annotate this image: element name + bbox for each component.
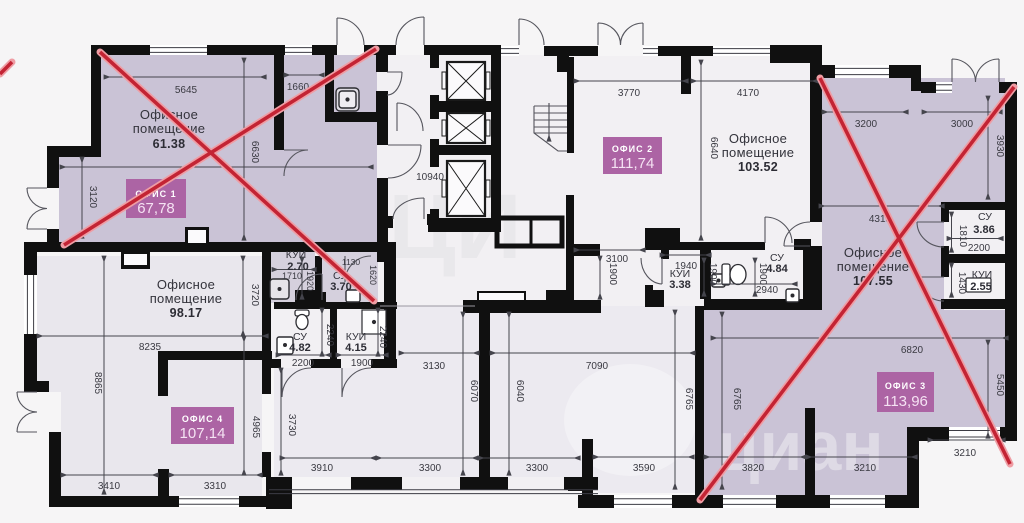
svg-text:2240: 2240: [377, 326, 388, 349]
svg-text:3910: 3910: [311, 463, 334, 474]
svg-text:2.70: 2.70: [287, 261, 308, 273]
svg-text:3720: 3720: [249, 284, 260, 307]
svg-text:5645: 5645: [175, 85, 198, 96]
svg-text:3410: 3410: [98, 481, 121, 492]
svg-text:8235: 8235: [139, 342, 162, 353]
svg-text:3210: 3210: [954, 448, 977, 459]
svg-text:3930: 3930: [994, 135, 1005, 158]
svg-text:6640: 6640: [708, 137, 719, 160]
svg-text:8865: 8865: [92, 372, 103, 395]
svg-text:2200: 2200: [292, 358, 315, 369]
svg-text:Офисное: Офисное: [729, 131, 787, 146]
svg-text:113,96: 113,96: [883, 393, 928, 410]
svg-text:6820: 6820: [901, 345, 924, 356]
svg-text:1430: 1430: [956, 272, 967, 295]
svg-text:1920: 1920: [305, 271, 315, 291]
svg-text:4170: 4170: [737, 88, 760, 99]
svg-text:3300: 3300: [526, 463, 549, 474]
svg-text:3310: 3310: [204, 481, 227, 492]
svg-text:6070: 6070: [468, 380, 479, 403]
svg-text:10940: 10940: [416, 172, 444, 183]
svg-text:6765: 6765: [683, 388, 694, 411]
svg-text:3.38: 3.38: [669, 279, 690, 291]
svg-text:3.86: 3.86: [973, 224, 994, 236]
svg-text:1900: 1900: [607, 263, 618, 286]
svg-text:4.82: 4.82: [289, 342, 310, 354]
svg-text:1900: 1900: [351, 358, 374, 369]
svg-text:3300: 3300: [419, 463, 442, 474]
svg-text:98.17: 98.17: [170, 306, 203, 320]
svg-text:1810: 1810: [957, 225, 968, 248]
svg-text:Офисное: Офисное: [157, 277, 215, 292]
svg-text:ОФИС 2: ОФИС 2: [612, 144, 653, 154]
svg-text:КУИ: КУИ: [286, 249, 306, 261]
svg-text:3590: 3590: [633, 463, 656, 474]
svg-text:7090: 7090: [586, 361, 609, 372]
svg-text:4.15: 4.15: [345, 342, 366, 354]
svg-text:помещение: помещение: [722, 145, 795, 160]
svg-text:3000: 3000: [951, 119, 974, 130]
svg-text:4965: 4965: [250, 416, 261, 439]
svg-text:3130: 3130: [423, 361, 446, 372]
svg-text:3.70: 3.70: [330, 281, 351, 293]
svg-text:1620: 1620: [368, 265, 378, 285]
svg-text:3200: 3200: [855, 119, 878, 130]
svg-text:ОФИС 3: ОФИС 3: [885, 381, 926, 391]
svg-text:ОФИС 4: ОФИС 4: [182, 414, 223, 424]
svg-text:2240: 2240: [324, 324, 335, 347]
svg-text:6630: 6630: [249, 141, 260, 164]
svg-text:1900: 1900: [707, 263, 718, 286]
svg-text:103.52: 103.52: [738, 160, 778, 174]
svg-text:4.84: 4.84: [766, 263, 788, 275]
svg-text:3730: 3730: [286, 414, 297, 437]
svg-text:3120: 3120: [87, 186, 98, 209]
svg-text:3770: 3770: [618, 88, 641, 99]
svg-text:61.38: 61.38: [153, 137, 186, 151]
svg-text:КУИ: КУИ: [972, 269, 992, 281]
svg-text:помещение: помещение: [150, 291, 223, 306]
svg-text:СУ: СУ: [978, 211, 992, 223]
svg-text:6765: 6765: [731, 388, 742, 411]
svg-text:1130: 1130: [342, 257, 361, 267]
svg-text:67,78: 67,78: [137, 200, 175, 217]
svg-text:2200: 2200: [968, 243, 991, 254]
svg-text:111,74: 111,74: [611, 155, 655, 172]
svg-text:6040: 6040: [514, 380, 525, 403]
svg-text:2.55: 2.55: [970, 281, 991, 293]
svg-text:5450: 5450: [994, 374, 1005, 397]
svg-text:107,14: 107,14: [180, 425, 226, 442]
svg-text:2940: 2940: [756, 285, 779, 296]
svg-text:3210: 3210: [854, 463, 877, 474]
svg-text:3820: 3820: [742, 463, 765, 474]
